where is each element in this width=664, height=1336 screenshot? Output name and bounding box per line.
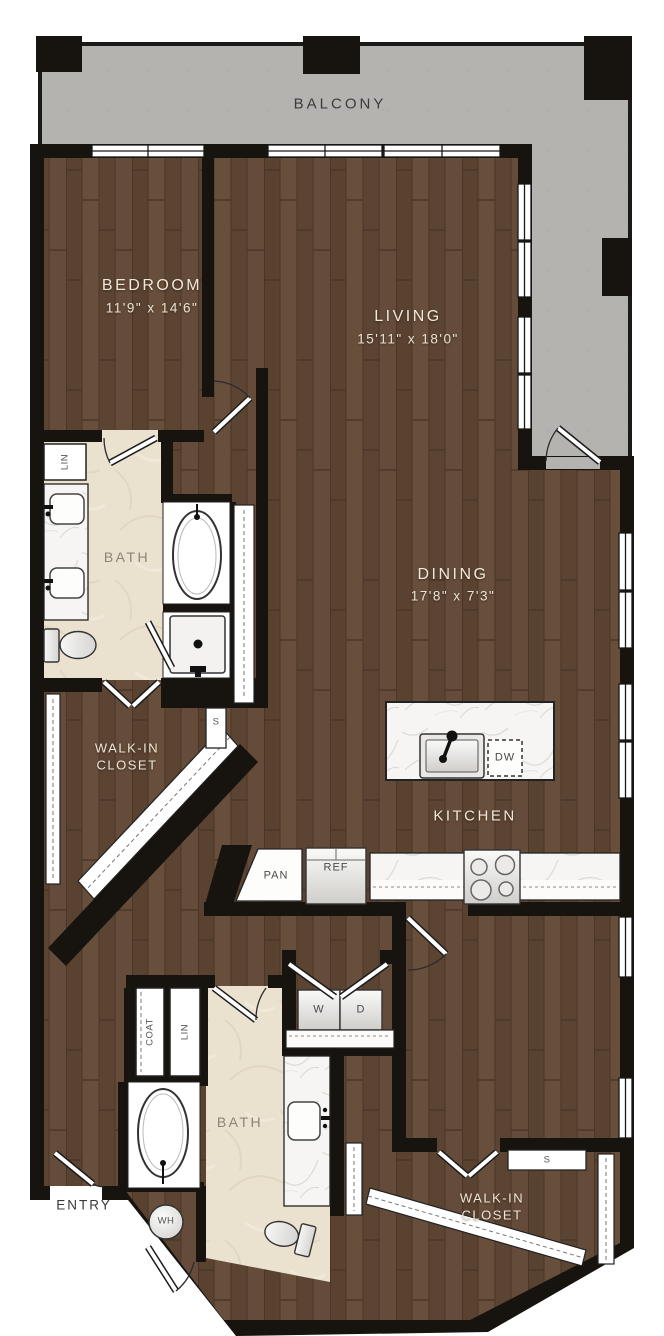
window-icon: [619, 533, 632, 590]
walkin2-label-line1: WALK-IN: [460, 1192, 524, 1205]
stove-icon: [464, 850, 520, 904]
sink-icon: [288, 1102, 320, 1140]
window-icon: [619, 742, 632, 798]
bedroom1-dims: 11'9" x 14'6": [106, 301, 199, 315]
window-icon: [619, 1078, 632, 1138]
dishwasher-label: DW: [495, 753, 515, 764]
balcony-column: [36, 36, 82, 72]
laundry-fixtures: [286, 990, 394, 1048]
window-icon: [518, 317, 531, 373]
bathtub-icon: [128, 1082, 200, 1188]
floor-plan: BALCONY BEDROOM 11'9" x 14'6" LIVING 15'…: [0, 0, 664, 1336]
shelf: [206, 708, 226, 748]
refrigerator-label: REF: [324, 863, 349, 874]
shower-icon: [163, 612, 230, 678]
shelf2-label: S: [544, 1155, 551, 1165]
pantry-label: PAN: [264, 871, 289, 882]
balcony-label: BALCONY: [294, 97, 387, 112]
bath2-label: BATH: [217, 1115, 263, 1129]
dining-dims: 17'8" x 7'3": [411, 589, 496, 603]
walkin1-label-line2: CLOSET: [96, 759, 157, 772]
linen1-label: LIN: [60, 454, 70, 470]
window-icon: [518, 184, 531, 240]
washer-label: W: [313, 1005, 324, 1016]
window-icon: [92, 145, 204, 157]
shelf1-label: S: [213, 717, 220, 727]
balcony-column: [602, 238, 632, 296]
walkin2-label-line2: CLOSET: [461, 1209, 522, 1222]
kitchen-label: KITCHEN: [433, 809, 516, 824]
dining-label: DINING: [418, 567, 489, 583]
window-icon: [619, 592, 632, 648]
floor-plan-drawing: [0, 0, 664, 1336]
window-icon: [384, 145, 500, 157]
bedroom1-closet-rod: [234, 505, 254, 703]
vanity: [284, 1056, 330, 1206]
window-icon: [619, 917, 632, 977]
double-vanity: [44, 484, 88, 620]
living-label: LIVING: [374, 309, 441, 325]
linen2-label: LIN: [180, 1024, 190, 1040]
sink-icon: [50, 568, 84, 598]
bedroom1-label: BEDROOM: [102, 278, 202, 294]
window-icon: [268, 145, 382, 157]
sink-icon: [50, 494, 84, 524]
entry-label: ENTRY: [56, 1198, 112, 1212]
bath1-label: BATH: [104, 550, 150, 564]
coat-label: COAT: [145, 1018, 155, 1046]
living-dims: 15'11" x 18'0": [357, 332, 459, 346]
bathtub-icon: [163, 502, 230, 604]
window-icon: [518, 242, 531, 297]
kitchen-island: [386, 702, 554, 780]
walkin1-label-line1: WALK-IN: [95, 742, 159, 755]
balcony-column: [584, 36, 632, 100]
dryer-label: D: [357, 1005, 366, 1016]
water-heater-label: WH: [158, 1216, 175, 1226]
window-icon: [518, 375, 531, 429]
window-icon: [619, 684, 632, 740]
refrigerator-icon: [306, 848, 366, 904]
balcony-column: [303, 36, 360, 74]
